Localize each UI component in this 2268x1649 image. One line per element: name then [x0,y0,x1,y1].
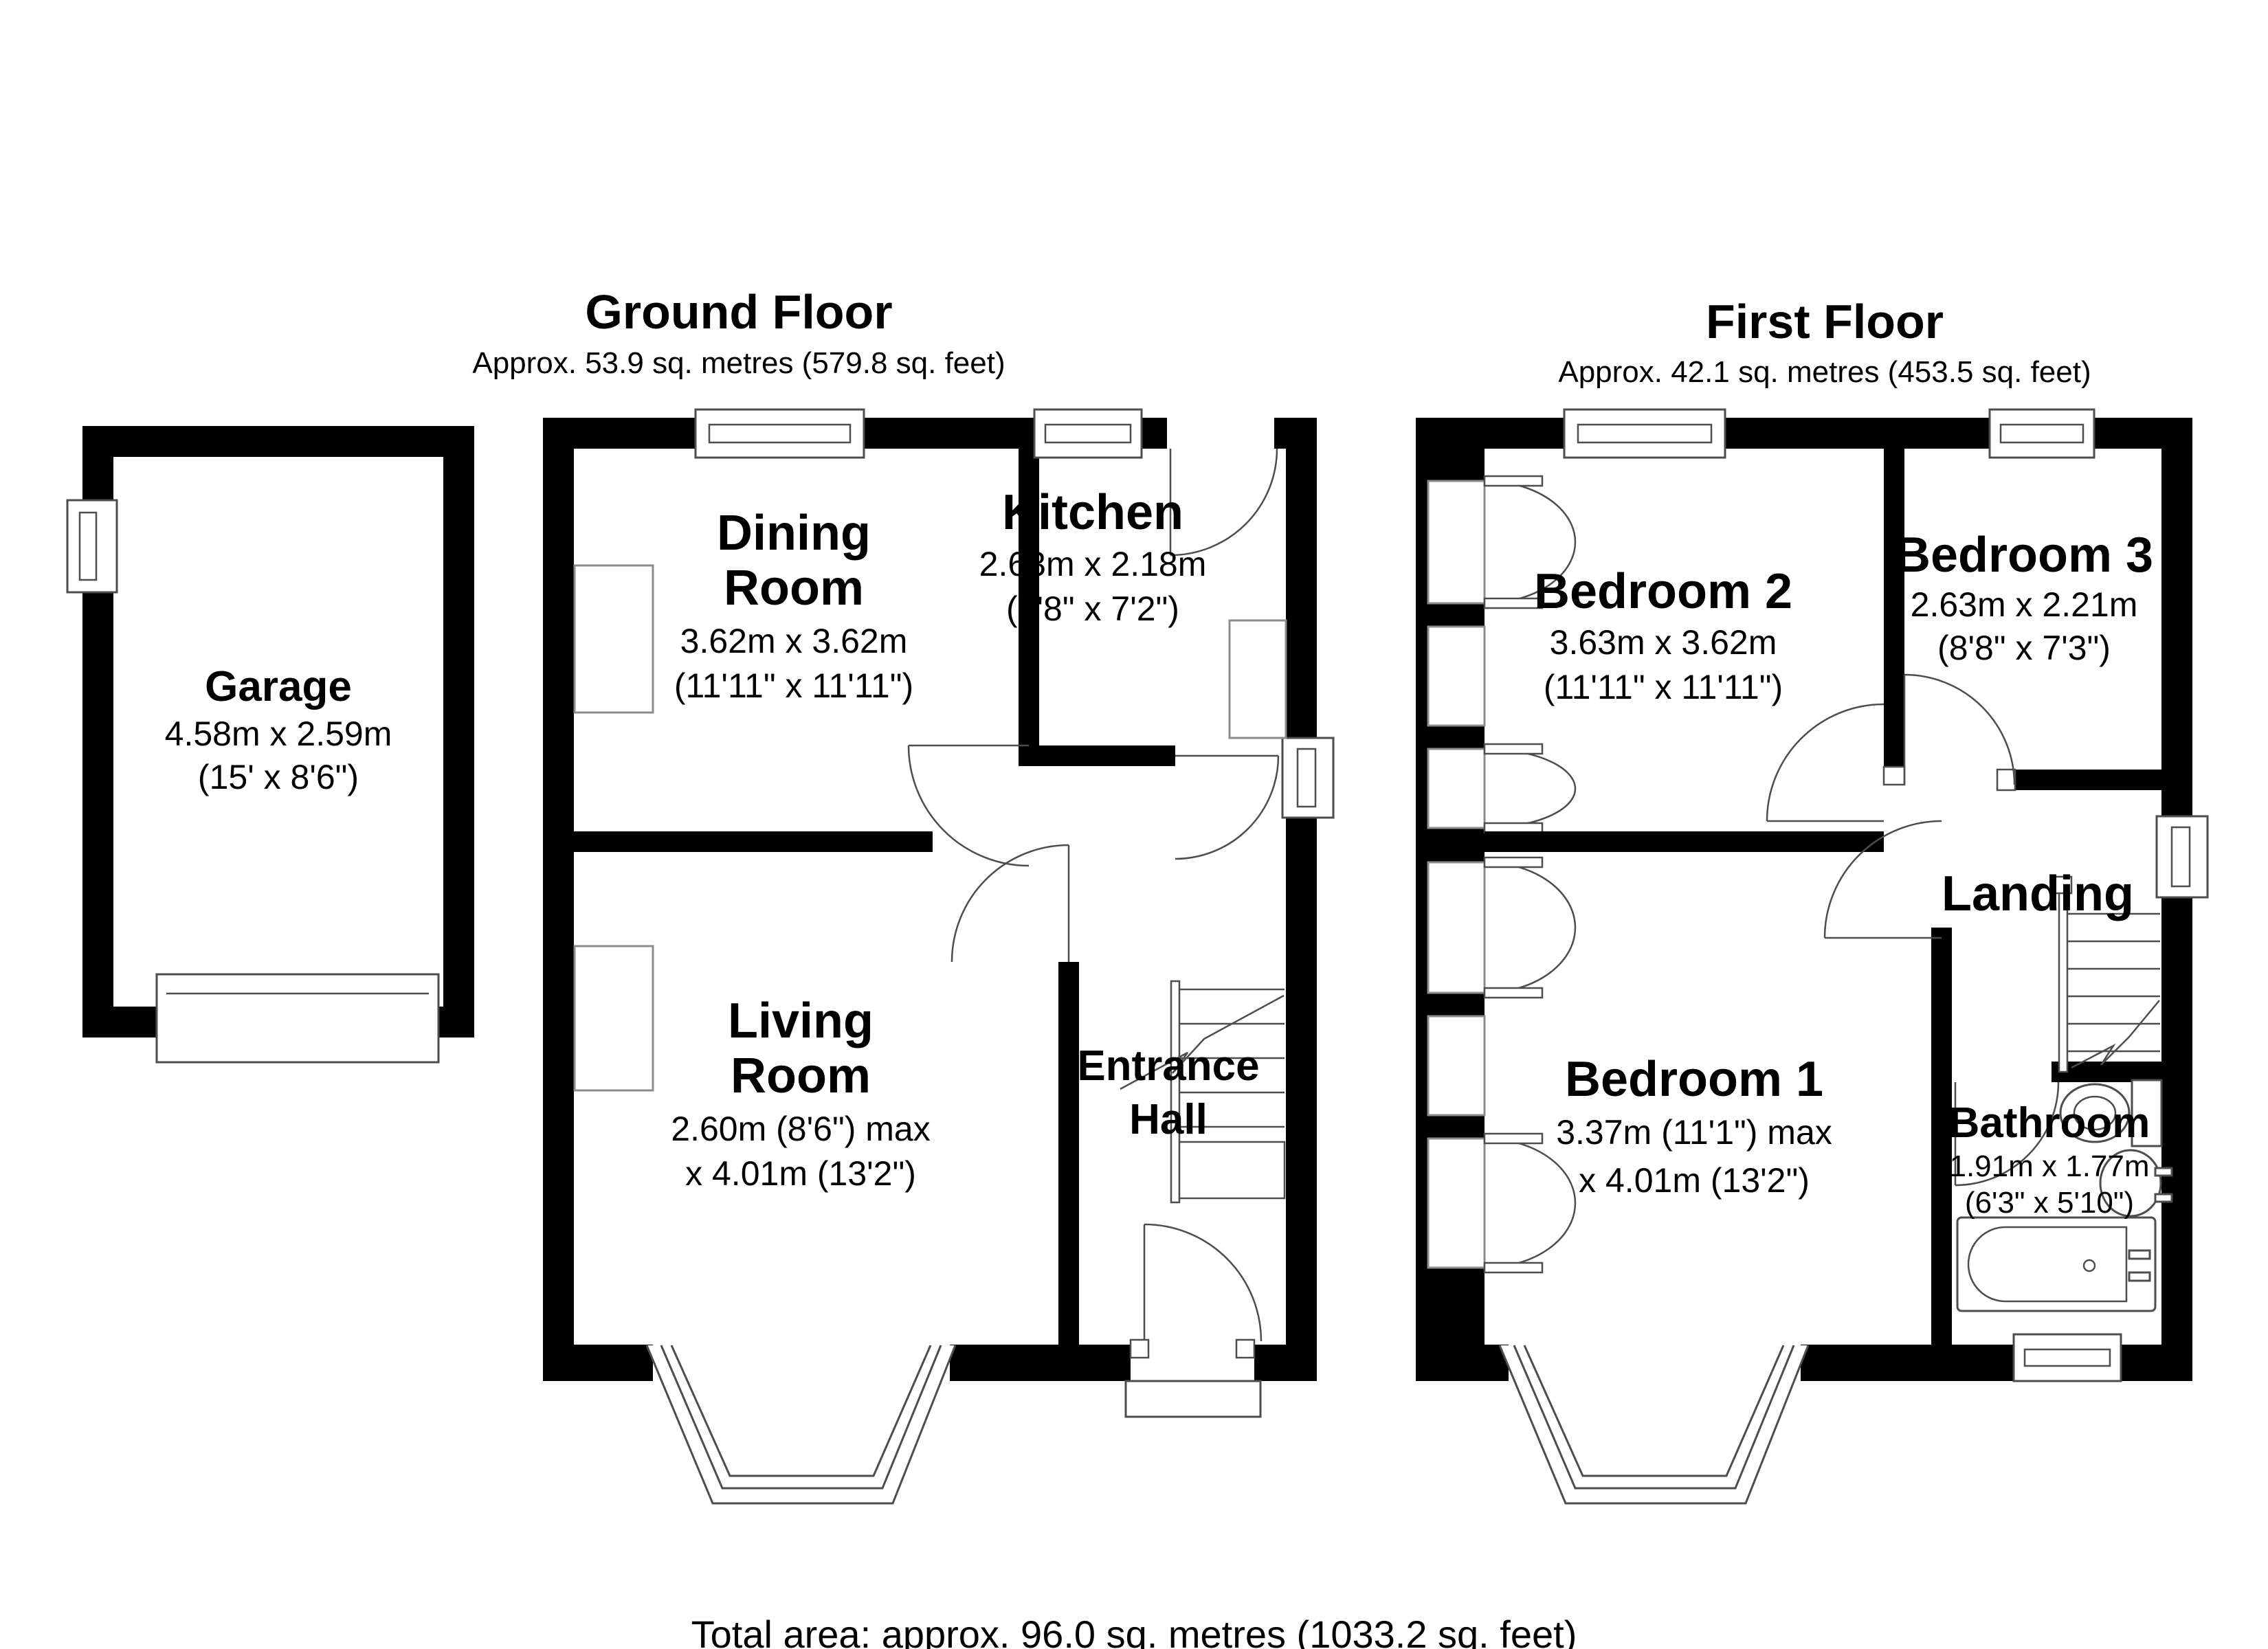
window-frame [1990,410,2094,458]
bath-tap [2129,1250,2150,1259]
dining-room-dims-m: 3.62m x 3.62m [680,622,908,660]
bedroom2-label: Bedroom 2 [1534,564,1792,619]
wall-living-hall [1058,962,1079,1345]
door-leaf [1485,744,1542,754]
door-leaf [1485,1134,1542,1143]
kitchen-counter-rect [1230,620,1286,738]
first-floor-plan: Bedroom 2 3.63m x 3.62m (11'11" x 11'11"… [1416,410,2208,1503]
door-leaf [1485,988,1542,998]
dining-room-dims-ft: (11'11" x 11'11") [674,666,913,705]
window-frame [696,410,864,458]
landing-label: Landing [1942,866,2134,921]
bathroom-window-icon [2014,1334,2121,1381]
chimney-recess [1428,627,1485,726]
bedroom3-label: Bedroom 3 [1895,528,2153,583]
kitchen-dims-ft: (8'8" x 7'2") [1006,590,1179,628]
total-area-label: Total area: approx. 96.0 sq. metres (103… [691,1613,1577,1649]
door-hinge [1236,1340,1254,1358]
door-leaf [1485,857,1542,867]
bedroom1-bay-window-icon [1500,1345,1808,1503]
kitchen-dims-m: 2.63m x 2.18m [979,545,1207,583]
door-hinge [1131,1340,1148,1358]
living-room-dims-ft: x 4.01m (13'2") [685,1154,916,1193]
garage-door-panel [157,974,438,1062]
wall-bed3-landing [2015,770,2161,790]
garage-door-icon [157,974,438,1062]
garage-dims-ft: (15' x 8'6") [198,758,359,796]
entrance-hall-label-line1: Entrance [1077,1042,1259,1090]
window-frame [1564,410,1725,458]
back-door-opening [1167,418,1274,449]
first-floor-title: First Floor [1706,295,1944,348]
bedroom2-dims-ft: (11'11" x 11'11") [1544,668,1783,706]
dining-window-icon [696,410,864,458]
wall-bed2-bed3 [1884,449,1904,767]
door-hinge [1884,767,1904,785]
garage-plan: Garage 4.58m x 2.59m (15' x 8'6") [67,426,474,1062]
living-bay-window-icon [647,1345,955,1503]
wardrobe-recess [1428,749,1485,828]
window-frame [1282,738,1333,818]
dining-room-label-line1: Dining [717,506,871,561]
dining-room-label-line2: Room [724,561,864,616]
door-leaf [1485,476,1542,486]
first-floor-area: Approx. 42.1 sq. metres (453.5 sq. feet) [1558,355,2091,389]
ground-floor-area: Approx. 53.9 sq. metres (579.8 sq. feet) [472,346,1005,380]
ground-floor-title: Ground Floor [585,285,892,339]
bedroom2-dims-m: 3.63m x 3.62m [1550,623,1777,662]
garage-dims-m: 4.58m x 2.59m [165,715,392,753]
kitchen-label: Kitchen [1002,485,1183,540]
bedroom1-dims-m: 3.37m (11'1") max [1556,1113,1832,1152]
garage-label: Garage [205,663,352,710]
door-hinge [1997,770,2015,790]
stair-bottom-step [1179,1142,1285,1198]
ground-floor-plan: Dining Room 3.62m x 3.62m (11'11" x 11'1… [543,410,1333,1503]
sink-tap [2155,1168,2172,1176]
bathtub-icon [1957,1218,2155,1311]
sink-tap [2155,1194,2172,1202]
door-leaf [1485,1263,1542,1272]
floorplan-page: Ground Floor Approx. 53.9 sq. metres (57… [0,0,2268,1649]
dining-furniture-rect [575,565,653,713]
living-room-label-line1: Living [728,994,874,1048]
window-frame [1034,410,1142,458]
bath-tap [2129,1272,2150,1281]
wall-dining-living [574,831,933,852]
bedroom1-dims-ft: x 4.01m (13'2") [1579,1161,1810,1200]
living-room-label-line2: Room [731,1048,871,1103]
wardrobe-recess [1428,862,1485,993]
bedroom3-dims-m: 2.63m x 2.21m [1911,585,2138,624]
window-frame [2014,1334,2121,1381]
wardrobe-recess [1428,481,1485,603]
bathroom-dims-ft: (6'3" x 5'10") [1965,1186,2134,1220]
door-sill [1126,1381,1260,1417]
wardrobe-recess [1428,1138,1485,1268]
wall-kitchen-hall [1019,745,1175,766]
bedroom1-label: Bedroom 1 [1565,1052,1823,1107]
hall-side-window-icon [1282,738,1333,818]
bathroom-dims-m: 1.91m x 1.77m [1949,1149,2149,1183]
living-furniture-rect [575,946,653,1090]
chimney-recess [1428,1016,1485,1115]
door-leaf [1485,823,1542,833]
bedroom3-dims-ft: (8'8" x 7'3") [1937,629,2111,667]
window-frame [2157,816,2208,897]
entrance-hall-label-line2: Hall [1129,1096,1208,1143]
floorplan-drawing: Ground Floor Approx. 53.9 sq. metres (57… [0,0,2268,1649]
bedroom3-window-icon [1990,410,2094,458]
window-frame [67,500,117,592]
landing-window-icon [2157,816,2208,897]
bedroom2-window-icon [1564,410,1725,458]
living-room-dims-m: 2.60m (8'6") max [671,1110,930,1148]
bathroom-label: Bathroom [1949,1099,2150,1147]
wall-bed2-bed1 [1485,831,1884,852]
stair-rail [1171,981,1179,1202]
kitchen-window-icon [1034,410,1142,458]
garage-window-icon [67,500,117,592]
